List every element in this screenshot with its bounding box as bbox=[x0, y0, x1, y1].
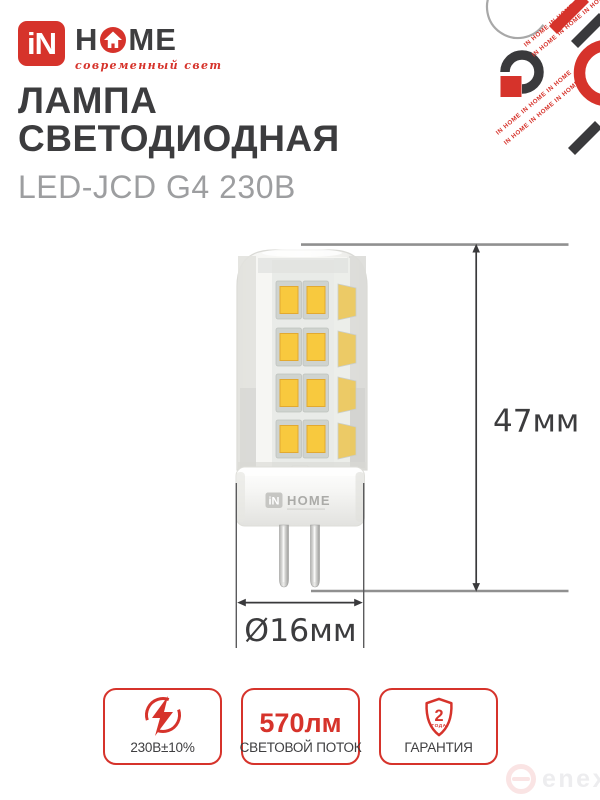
brand-letter-e: E bbox=[155, 24, 177, 55]
warranty-years: 2 bbox=[434, 707, 443, 725]
enex-watermark-text: enex bbox=[542, 765, 600, 794]
badge-warranty-label: ГАРАНТИЯ bbox=[404, 740, 472, 755]
title-line-2: СВЕТОДИОДНАЯ bbox=[18, 120, 340, 158]
base-brand-text: HOME bbox=[287, 493, 331, 508]
arrow-left-icon bbox=[237, 599, 246, 607]
brand-logo-text: H ME современный свет bbox=[75, 21, 222, 72]
badge-voltage-label: 230В±10% bbox=[130, 740, 194, 755]
brand-letter-m: M bbox=[128, 24, 155, 55]
badge-flux-label: СВЕТОВОЙ ПОТОК bbox=[240, 740, 362, 755]
page-title: ЛАМПА СВЕТОДИОДНАЯ bbox=[18, 82, 340, 157]
lamp-dimension-diagram: iN HOME 47мм Ø16мм bbox=[150, 230, 600, 690]
warranty-shield-icon: 2 ГОДА bbox=[421, 697, 457, 737]
brand-logo: iN H ME современный свет bbox=[18, 21, 222, 72]
warranty-years-unit: ГОДА bbox=[431, 723, 446, 729]
brand-logo-home: H ME bbox=[75, 24, 222, 55]
spec-badges-row: 230В±10% 570лм СВЕТОВОЙ ПОТОК 2 ГОДА ГАР… bbox=[103, 688, 498, 765]
base-brand-square: iN bbox=[269, 496, 280, 508]
height-dimension-label: 47мм bbox=[493, 404, 579, 440]
product-model: LED-JCD G4 230В bbox=[18, 169, 296, 206]
brand-letter-h: H bbox=[75, 24, 98, 55]
decor-red-square bbox=[501, 76, 522, 97]
enex-logo-icon bbox=[506, 764, 536, 794]
house-in-circle-icon bbox=[100, 27, 126, 53]
enex-watermark: enex bbox=[506, 764, 600, 794]
corner-decoration: IN HOME IN HOME IN HOME IN HOME IN HOME … bbox=[440, 0, 600, 210]
voltage-lightning-icon bbox=[140, 695, 186, 737]
badge-luminous-flux: 570лм СВЕТОВОЙ ПОТОК bbox=[241, 688, 360, 765]
badge-voltage: 230В±10% bbox=[103, 688, 222, 765]
arrow-right-icon bbox=[354, 599, 363, 607]
diameter-dimension-label: Ø16мм bbox=[244, 613, 356, 649]
badge-flux-value: 570лм bbox=[259, 710, 341, 737]
decor-black-stripe-2 bbox=[568, 121, 600, 155]
base-brand-print: iN HOME bbox=[266, 493, 331, 510]
product-card: iN H ME современный свет IN HOME IN HOME… bbox=[0, 0, 600, 800]
lamp-photo: iN HOME bbox=[236, 249, 367, 587]
badge-warranty: 2 ГОДА ГАРАНТИЯ bbox=[379, 688, 498, 765]
decor-big-red-arc bbox=[580, 46, 600, 101]
brand-tagline: современный свет bbox=[75, 59, 222, 72]
brand-logo-square: iN bbox=[18, 21, 65, 66]
title-line-1: ЛАМПА bbox=[18, 82, 340, 120]
